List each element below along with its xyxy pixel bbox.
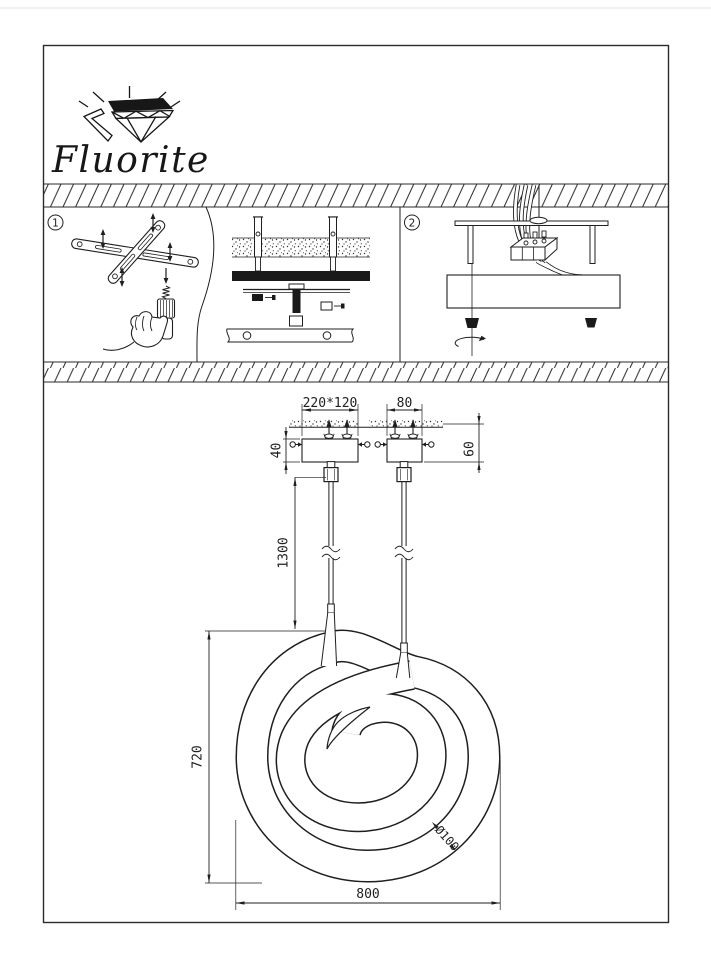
- svg-text:80: 80: [397, 396, 413, 411]
- svg-text:60: 60: [463, 441, 478, 457]
- step-1-badge: 1: [48, 215, 63, 230]
- brand-name: Fluorite: [51, 140, 210, 181]
- svg-text:800: 800: [356, 887, 379, 902]
- ceiling-line: [289, 420, 443, 429]
- canopy-large: [302, 439, 358, 462]
- hatch-band-top: [44, 184, 669, 207]
- step-number-2: 2: [409, 218, 416, 230]
- svg-text:40: 40: [270, 443, 285, 459]
- step-number-1: 1: [52, 218, 59, 230]
- canopy-illustration: [447, 275, 620, 308]
- svg-text:220*120: 220*120: [303, 396, 358, 411]
- svg-text:1300: 1300: [277, 537, 292, 568]
- ceiling-board: [232, 271, 370, 281]
- hatch-band-bottom: [44, 362, 669, 382]
- svg-text:720: 720: [191, 745, 206, 768]
- step-2-badge: 2: [405, 215, 420, 230]
- canopy-small: [387, 439, 422, 462]
- instruction-sheet: Fluorite 1: [0, 0, 711, 970]
- concrete-layer: [232, 238, 370, 257]
